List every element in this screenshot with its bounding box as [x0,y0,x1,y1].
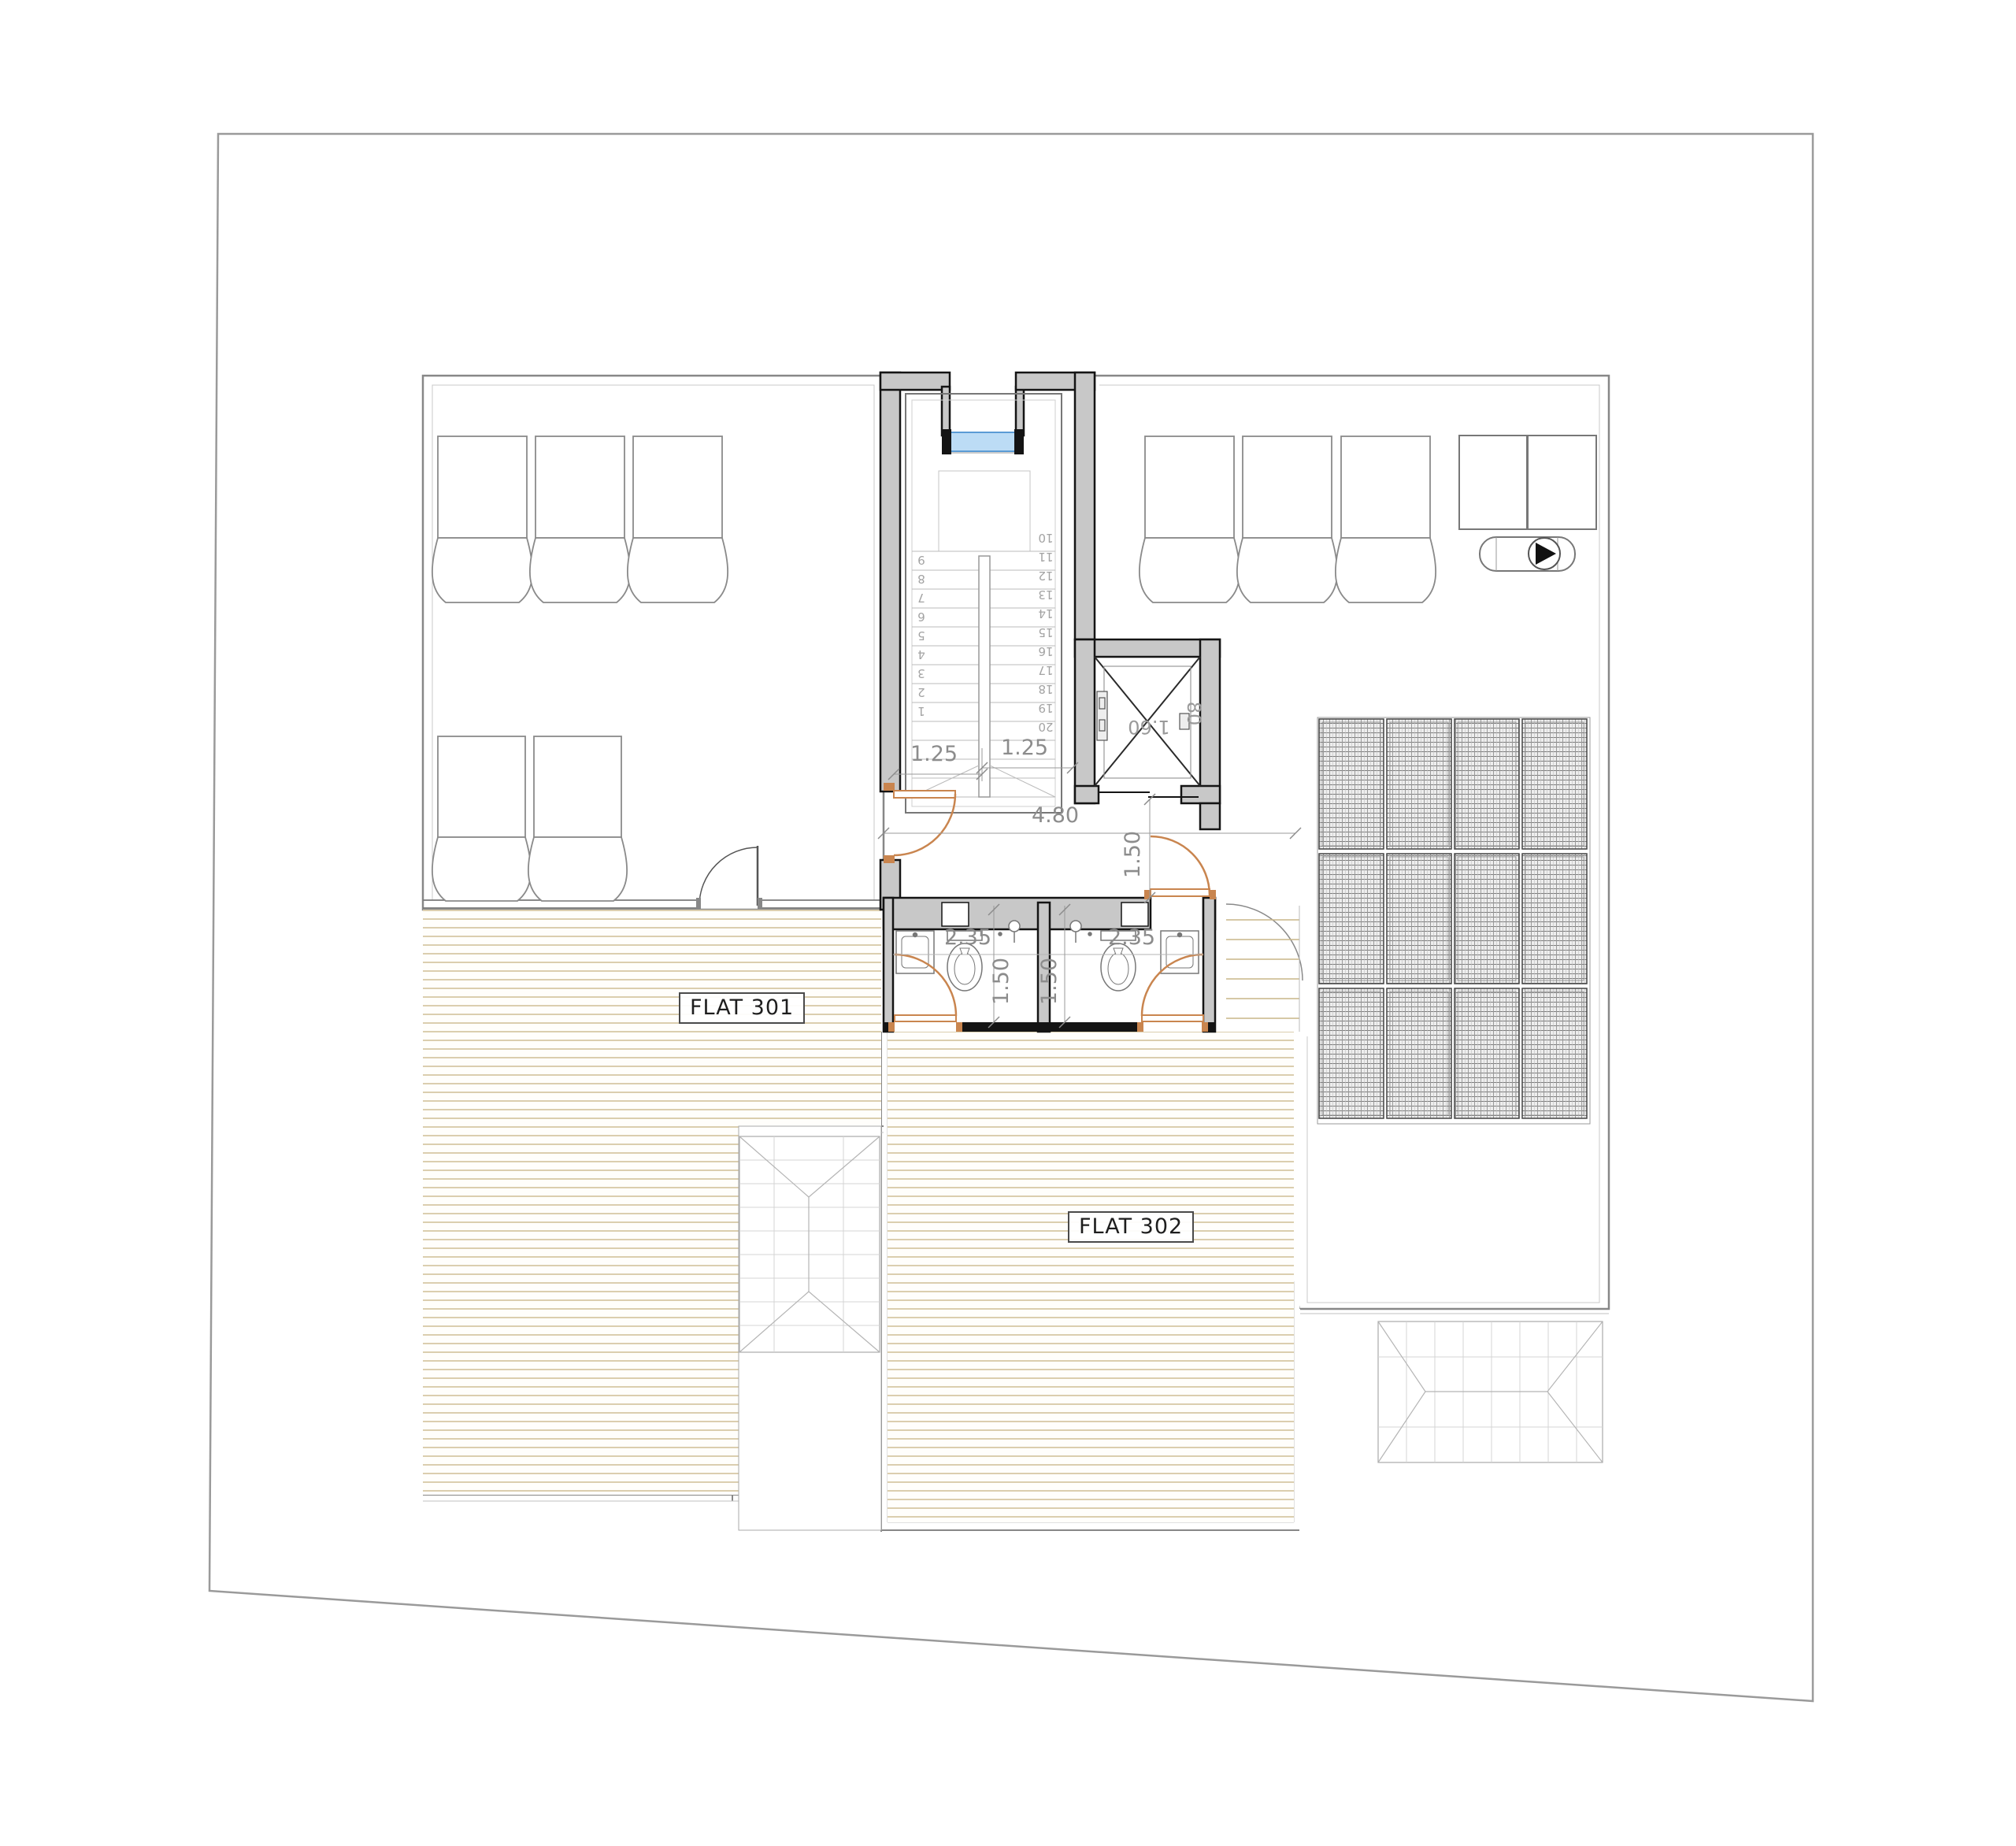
shower-head [1070,921,1081,932]
stair-step-number: 7 [917,591,925,605]
door-leaf-bath-right [1142,1015,1203,1021]
stair-step-number: 13 [1038,588,1053,602]
stair-step-number: 11 [1038,550,1053,564]
shower-niche [1121,903,1148,926]
skylight-icon [1336,436,1436,602]
skylight-icon [1237,436,1337,602]
stair-step-number: 8 [917,572,925,586]
stair-step-number: 16 [1038,644,1053,658]
shower-niche [942,903,969,926]
dimension-label: 1.50 [1121,831,1145,878]
solar-panel [1319,988,1384,1118]
door-leaf-flat301 [894,791,955,798]
dimension-label: 1.50 [989,958,1014,1005]
dimension-label: 1.60 [1128,716,1169,738]
solar-panel [1522,719,1587,849]
stair-step-number: 18 [1038,682,1053,696]
stair-step-number: 17 [1038,663,1053,677]
stair-step-number: 14 [1038,606,1053,621]
stair-step-number: 6 [917,610,925,624]
skylight-icon [432,436,532,602]
solar-panel [1387,854,1451,984]
flat-301-label: FLAT 301 [679,992,805,1024]
solar-panel [1522,988,1587,1118]
solar-panel [1455,988,1519,1118]
bath-left-wall [884,898,893,1032]
stair-step-number: 19 [1038,701,1053,715]
dimension-label: 2.35 [1108,925,1155,950]
stair-step-number: 4 [917,647,925,662]
skylight-icon [530,436,630,602]
skylight-icon [1140,436,1240,602]
shower-head [1009,921,1020,932]
tower-wall-left [880,373,900,791]
solar-panel [1319,719,1384,849]
stair-step-number: 3 [917,666,925,680]
terrace-flat302-fill [888,1032,1294,1522]
floor-plan: 9876543211011121314151617181920 [0,0,2016,1846]
dimension-label: 1.25 [1001,736,1048,760]
stair-step-number: 20 [1038,720,1053,734]
dimension-label: 2.35 [944,925,991,950]
solar-panel [1387,988,1451,1118]
skylight-icon [528,736,627,901]
solar-panel [1319,854,1384,984]
skylight-icon [628,436,728,602]
stair-step-number: 1 [917,704,925,718]
skylight-icon [432,736,531,901]
hip-roof-small [739,1126,881,1530]
solar-panel [1522,854,1587,984]
dimension-label: 4.80 [1032,803,1079,828]
hip-roof-large [1378,1321,1603,1462]
dimension-label: 80 [1183,702,1205,726]
solar-panel [1455,854,1519,984]
solar-panel [1455,719,1519,849]
stair-step-number: 9 [917,553,925,567]
flat-302-label: FLAT 302 [1068,1211,1194,1243]
stair-step-number: 10 [1038,531,1053,545]
bath-right-wall [1203,898,1215,1032]
door-leaf-bath-left [895,1015,956,1021]
solar-panel [1387,719,1451,849]
stair-step-number: 15 [1038,625,1053,639]
dimension-label: 1.50 [1037,958,1062,1005]
stairwell-window [942,429,1024,454]
tower-wall-right [1075,373,1095,639]
door-leaf-flat302 [1151,889,1210,896]
stair-step-number: 5 [917,628,925,643]
tower-wall-top-left [880,373,950,390]
stair-step-number: 2 [917,685,925,699]
stair-step-number: 12 [1038,569,1053,583]
two-pane-skylight [1459,436,1596,529]
stair-divider [979,556,990,797]
dimension-label: 1.25 [910,742,958,766]
solar-water-heater [1480,537,1575,571]
